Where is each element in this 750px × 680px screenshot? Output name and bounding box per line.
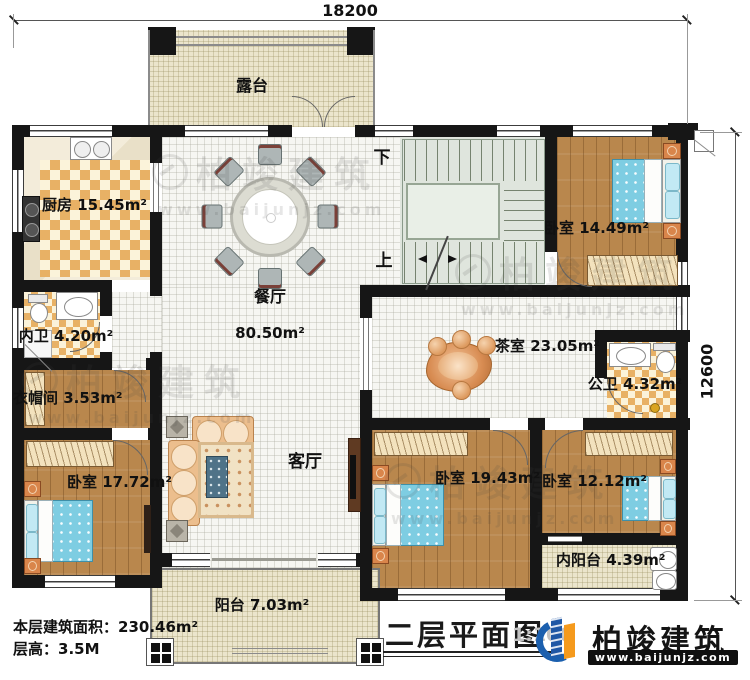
- basin-bowl: [616, 347, 646, 365]
- room-area: 14.49m²: [579, 219, 649, 237]
- wall: [413, 125, 497, 137]
- room-name: 卧室: [67, 473, 97, 491]
- room-name: 卧室: [544, 219, 574, 237]
- floor-drain: [650, 403, 660, 413]
- pillow: [663, 499, 676, 519]
- room-name: 卧室: [542, 472, 572, 490]
- stair-landing: [406, 183, 500, 240]
- wall: [162, 553, 172, 567]
- toilet-bowl: [30, 303, 48, 323]
- burner: [25, 223, 39, 237]
- wall-kitchen-bottom: [12, 280, 112, 292]
- wall: [112, 125, 185, 137]
- wall-inner-bath-right: [100, 280, 112, 316]
- room-label-bedroom-br: 卧室 12.12m²: [542, 472, 642, 491]
- floor-height-value: 3.5M: [58, 640, 100, 658]
- room-area: 15.45m²: [77, 196, 147, 214]
- watermark-site: www.baijunjz.com: [391, 509, 618, 528]
- logo-tower-blue: [551, 617, 562, 657]
- tea-stool: [428, 337, 447, 356]
- terrace-parapet: [176, 36, 347, 38]
- wash-basin: [609, 343, 651, 367]
- room-name: 公卫: [588, 375, 618, 393]
- balcony-step: [232, 648, 328, 649]
- nightstand: [663, 143, 681, 159]
- wall: [268, 125, 292, 137]
- floor-height-label: 层高：: [13, 640, 58, 658]
- window: [497, 125, 540, 137]
- dimension-line-top: [13, 20, 687, 21]
- wardrobe: [374, 432, 468, 456]
- nightstand: [660, 521, 676, 536]
- watermark-site: www.baijunjz.com: [28, 408, 255, 427]
- room-label-inner-balcony: 内阳台 4.39m²: [556, 551, 656, 570]
- room-area: 4.20m²: [54, 327, 113, 345]
- bed-sheet: [644, 159, 662, 223]
- terrace-parapet: [176, 44, 347, 46]
- room-area-dining: 80.50m²: [220, 324, 320, 343]
- room-label-cloakroom: 衣帽间 3.53m²: [13, 389, 113, 408]
- nightstand: [24, 558, 41, 574]
- toilet: [28, 294, 48, 303]
- brand-website-bar: www.baijunjz.com: [588, 650, 738, 665]
- wall-tea-left: [360, 285, 372, 318]
- wash-basin: [56, 292, 98, 320]
- window: [375, 125, 413, 137]
- wall-tea-bottom: [360, 418, 490, 430]
- room-label-kitchen: 厨房 15.45m²: [42, 196, 142, 215]
- pillow: [665, 191, 680, 219]
- wall-living-right: [360, 418, 372, 601]
- window: [30, 125, 112, 137]
- tea-stool: [452, 330, 471, 349]
- kitchen-sink: [70, 137, 112, 160]
- room-label-public-bath: 公卫 4.32m²: [585, 375, 685, 394]
- pillow: [663, 479, 676, 499]
- terrace-pillar-right: [347, 27, 375, 55]
- wall-tea-bottom: [583, 418, 690, 430]
- wall: [505, 588, 558, 601]
- wardrobe: [585, 432, 673, 456]
- room-area: 7.03m²: [250, 596, 309, 614]
- wall: [115, 575, 162, 588]
- watermark-site: www.baijunjz.com: [461, 300, 688, 319]
- sliding-door: [548, 536, 582, 542]
- room-name: 茶室: [495, 337, 525, 355]
- stair-up-label: 上: [372, 251, 396, 272]
- room-area: 4.32m²: [623, 375, 682, 393]
- balcony-pillar: [356, 638, 384, 666]
- window: [45, 575, 115, 588]
- room-label-terrace: 露台: [202, 76, 302, 96]
- watermark-logo-icon: [152, 154, 188, 190]
- basin-bowl: [656, 573, 676, 590]
- title-underline: [383, 651, 561, 653]
- wall: [360, 588, 398, 601]
- bed-sheet: [38, 500, 53, 562]
- tea-table-inner: [438, 352, 478, 380]
- dimension-ext: [700, 132, 742, 133]
- laundry-basin: [652, 570, 677, 590]
- balcony-step: [232, 653, 328, 654]
- side-table: [166, 520, 188, 542]
- room-label-bedroom-bm: 卧室 19.43m²: [435, 469, 535, 488]
- wall-tea-left: [360, 390, 372, 418]
- side-table-top: [170, 524, 184, 538]
- stove: [22, 196, 40, 242]
- room-name: 厨房: [42, 196, 72, 214]
- toilet-bowl: [656, 351, 675, 373]
- sofa-cushion: [171, 470, 197, 496]
- watermark-site: www.baijunjz.com: [158, 200, 385, 219]
- room-label-inner-bath: 内卫 4.20m²: [16, 327, 116, 346]
- room-area: 23.05m²: [530, 337, 600, 355]
- room-area: 12.12m²: [577, 472, 647, 490]
- nightstand: [660, 459, 676, 474]
- dimension-ext: [13, 14, 14, 48]
- window: [185, 125, 268, 137]
- pillow: [26, 532, 38, 560]
- dimension-ext: [694, 600, 742, 601]
- window: [573, 125, 652, 137]
- logo-tower-orange: [564, 623, 575, 659]
- coffee-table: [206, 456, 228, 498]
- wall-bedroom-bl-top: [12, 428, 112, 440]
- basin-bowl: [64, 297, 93, 317]
- room-name: 阳台: [215, 596, 245, 614]
- window: [558, 588, 660, 601]
- watermark-brand: 柏竣建筑: [499, 246, 683, 298]
- stair-treads-upper: [404, 140, 544, 181]
- room-name: 内卫: [19, 327, 49, 345]
- room-label-dining: 餐厅: [220, 287, 320, 307]
- room-label-bedroom-tr: 卧室 14.49m²: [544, 219, 644, 238]
- brand-logo-icon: [536, 612, 588, 668]
- room-name: 卧室: [435, 469, 465, 487]
- floor-area-line: 本层建筑面积：230.46m²: [13, 616, 198, 637]
- kitchen-floor: [40, 160, 150, 277]
- room-label-balcony: 阳台 7.03m²: [212, 596, 312, 615]
- room-area: 3.53m²: [63, 389, 122, 407]
- sliding-door: [363, 318, 369, 390]
- window: [172, 553, 210, 567]
- pillow: [26, 504, 38, 532]
- tea-stool: [477, 336, 496, 355]
- wall: [355, 125, 375, 137]
- floor-height-line: 层高：3.5M: [13, 638, 100, 659]
- nightstand: [372, 548, 389, 564]
- sink-bowl: [74, 141, 91, 158]
- dining-chair: [258, 268, 282, 289]
- dimension-ext: [687, 14, 688, 124]
- window: [398, 588, 505, 601]
- room-area: 17.72m²: [102, 473, 172, 491]
- window: [318, 553, 356, 567]
- wall: [12, 575, 45, 588]
- room-area: 19.43m²: [470, 469, 540, 487]
- room-area: 4.39m²: [606, 551, 665, 569]
- dimension-top-value: 18200: [317, 1, 383, 20]
- floor-area-value: 230.46m²: [118, 618, 198, 636]
- terrace-edge: [373, 30, 375, 127]
- wall: [540, 125, 573, 137]
- wall-kitchen-right: [150, 212, 162, 296]
- wall-bedroom-bl-top: [148, 428, 162, 440]
- pillow: [665, 163, 680, 191]
- stair-treads-turn: [504, 186, 544, 241]
- room-label-bedroom-bl: 卧室 17.72m²: [67, 473, 167, 492]
- room-name: 内阳台: [556, 551, 601, 569]
- burner: [25, 203, 39, 217]
- nightstand: [24, 481, 41, 497]
- watermark: 柏竣建筑 www.baijunjz.com: [455, 246, 688, 319]
- tea-stool: [452, 381, 471, 400]
- floor-plan: 下 上: [0, 0, 750, 680]
- sofa-cushion: [171, 444, 197, 470]
- bed-sheet: [648, 476, 661, 521]
- dimension-right-value: 12600: [698, 337, 717, 407]
- watermark-logo-icon: [385, 463, 421, 499]
- title-underline: [383, 656, 561, 657]
- stair-arrow-left: [418, 255, 427, 263]
- floor-area-label: 本层建筑面积：: [13, 618, 118, 636]
- watermark: 柏竣建筑 www.baijunjz.com: [152, 146, 385, 219]
- nightstand: [663, 223, 681, 239]
- sofa-cushion: [171, 496, 197, 522]
- watermark: 柏竣建筑 www.baijunjz.com: [385, 455, 618, 528]
- room-name: 衣帽间: [13, 389, 58, 407]
- watermark-logo-icon: [455, 254, 491, 290]
- wall-public-bath-top: [595, 330, 690, 342]
- watermark-brand: 柏竣建筑: [196, 146, 380, 198]
- dimension-line-right: [735, 133, 736, 601]
- balcony-door-threshold: [212, 558, 316, 561]
- balcony-pillar: [146, 638, 174, 666]
- terrace-edge: [148, 30, 150, 127]
- toilet: [653, 343, 676, 351]
- room-label-living: 客厅: [255, 452, 355, 473]
- sink-bowl: [93, 141, 110, 158]
- wardrobe: [26, 441, 114, 467]
- tv: [144, 505, 151, 553]
- terrace-pillar-left: [148, 27, 176, 55]
- room-label-tea-room: 茶室 23.05m²: [495, 337, 595, 356]
